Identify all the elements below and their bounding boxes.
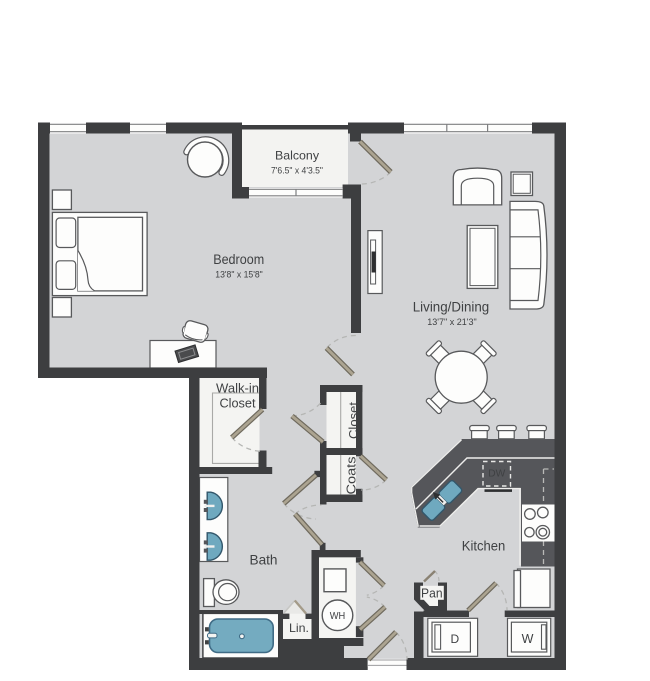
svg-text:Walk-in: Walk-in bbox=[216, 381, 259, 396]
svg-text:Pan: Pan bbox=[421, 587, 443, 601]
svg-text:Balcony: Balcony bbox=[275, 149, 320, 163]
svg-text:Closet: Closet bbox=[346, 402, 361, 439]
svg-text:Bedroom: Bedroom bbox=[213, 251, 264, 267]
svg-text:Coats: Coats bbox=[344, 456, 359, 495]
svg-text:Kitchen: Kitchen bbox=[462, 538, 506, 554]
svg-text:Bath: Bath bbox=[250, 552, 278, 568]
svg-text:Living/Dining: Living/Dining bbox=[413, 299, 490, 315]
svg-text:13'7" x 21'3": 13'7" x 21'3" bbox=[427, 317, 477, 328]
svg-text:Lin.: Lin. bbox=[289, 621, 309, 635]
svg-text:D: D bbox=[450, 632, 459, 646]
svg-text:WH: WH bbox=[330, 611, 346, 622]
svg-text:Closet: Closet bbox=[220, 396, 256, 411]
svg-text:13'8" x 15'8": 13'8" x 15'8" bbox=[215, 270, 263, 281]
svg-text:DW: DW bbox=[488, 469, 506, 480]
svg-text:7'6.5" x 4'3.5": 7'6.5" x 4'3.5" bbox=[271, 166, 323, 176]
svg-text:W: W bbox=[522, 632, 534, 646]
